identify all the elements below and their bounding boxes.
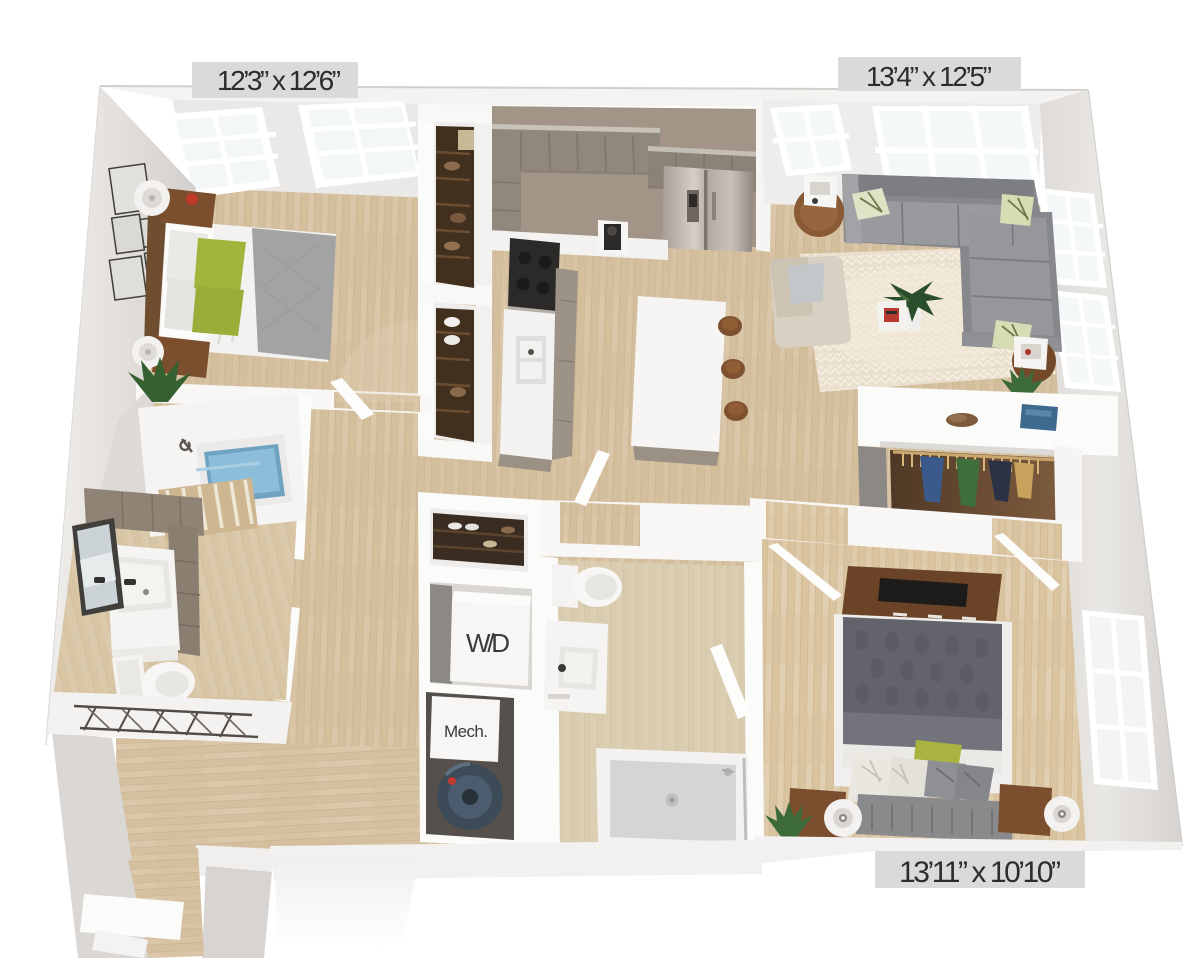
- svg-text:Mech.: Mech.: [444, 722, 488, 741]
- svg-text:13’4” x 12’5”: 13’4” x 12’5”: [866, 61, 992, 92]
- svg-text:12’3” x 12’6”: 12’3” x 12’6”: [217, 65, 341, 96]
- svg-text:13’11” x 10’10”: 13’11” x 10’10”: [899, 856, 1061, 889]
- svg-text:W/D: W/D: [466, 628, 510, 658]
